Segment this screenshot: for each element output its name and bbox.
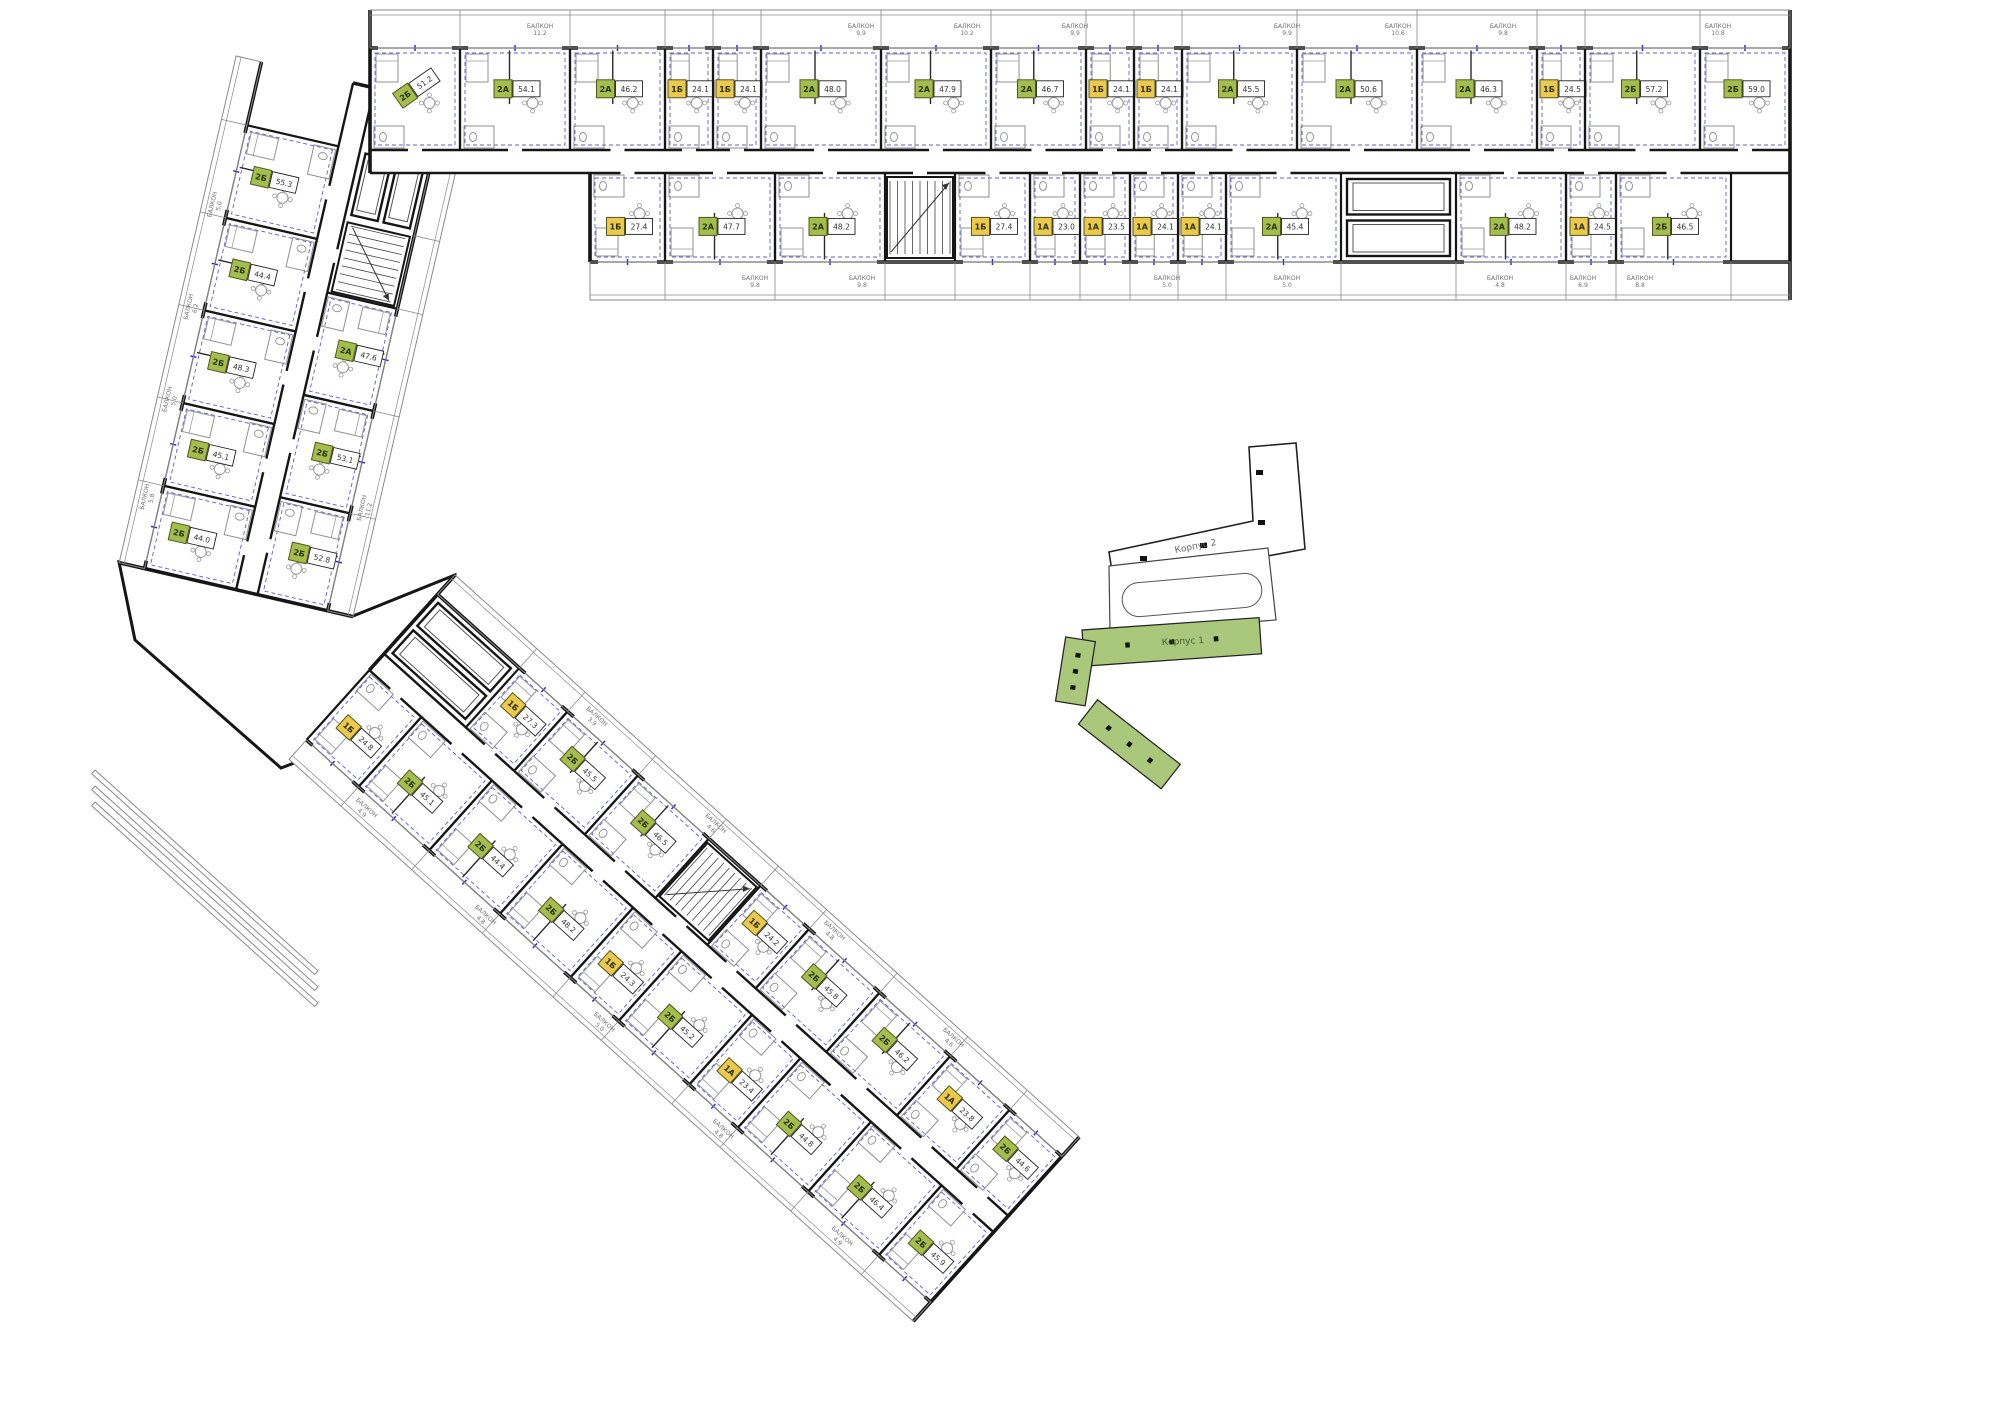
- unit-badge[interactable]: 2А47.9: [915, 80, 961, 98]
- svg-text:50.6: 50.6: [1360, 85, 1377, 94]
- svg-text:9.8: 9.8: [1498, 30, 1508, 37]
- svg-text:24.1: 24.1: [692, 85, 709, 94]
- svg-text:2А: 2А: [1493, 222, 1506, 231]
- unit-badge[interactable]: 2А47.7: [699, 217, 745, 235]
- svg-text:1А: 1А: [1573, 222, 1586, 231]
- svg-text:48.2: 48.2: [833, 222, 850, 231]
- svg-text:45.4: 45.4: [1287, 222, 1304, 231]
- svg-text:10.8: 10.8: [1711, 30, 1725, 37]
- svg-text:БАЛКОН: БАЛКОН: [742, 275, 768, 282]
- svg-text:9.9: 9.9: [1070, 30, 1080, 37]
- svg-text:24.5: 24.5: [1594, 222, 1611, 231]
- unit-badge[interactable]: 2А48.0: [800, 80, 846, 98]
- unit-badge[interactable]: 2А46.7: [1018, 80, 1064, 98]
- svg-text:БАЛКОН: БАЛКОН: [1570, 275, 1596, 282]
- svg-text:10.6: 10.6: [1391, 30, 1405, 37]
- svg-text:1Б: 1Б: [610, 222, 622, 231]
- svg-text:БАЛКОН: БАЛКОН: [1487, 275, 1513, 282]
- svg-text:1Б: 1Б: [719, 85, 731, 94]
- svg-text:2А: 2А: [1266, 222, 1279, 231]
- unit-badge[interactable]: 2Б59.0: [1724, 80, 1770, 98]
- svg-text:2А: 2А: [812, 222, 825, 231]
- minimap-korpus-1[interactable]: [1051, 618, 1271, 796]
- svg-text:11.2: 11.2: [533, 30, 547, 37]
- svg-text:48.2: 48.2: [1514, 222, 1531, 231]
- svg-text:БАЛКОН: БАЛКОН: [1274, 23, 1300, 30]
- unit-badge[interactable]: 2Б57.2: [1622, 80, 1668, 98]
- svg-text:1Б: 1Б: [1092, 85, 1104, 94]
- svg-text:БАЛКОН: БАЛКОН: [1154, 275, 1180, 282]
- svg-text:2Б: 2Б: [1625, 85, 1637, 94]
- svg-text:БАЛКОН: БАЛКОН: [849, 275, 875, 282]
- top-wing: 2Б51.22А54.12А46.21Б24.11Б24.12А48.02А47…: [370, 10, 1790, 300]
- svg-text:8.8: 8.8: [1635, 282, 1645, 289]
- svg-text:2А: 2А: [1339, 85, 1352, 94]
- unit-badge[interactable]: 2Б46.5: [1653, 217, 1699, 235]
- svg-text:27.4: 27.4: [996, 222, 1013, 231]
- svg-text:БАЛКОН: БАЛКОН: [1627, 275, 1653, 282]
- svg-text:6.9: 6.9: [1578, 282, 1588, 289]
- unit-badge[interactable]: 1Б24.1: [1089, 80, 1135, 98]
- svg-text:10.2: 10.2: [960, 30, 974, 37]
- unit-badge[interactable]: 2А46.3: [1456, 80, 1502, 98]
- unit-badge[interactable]: 1Б24.1: [668, 80, 714, 98]
- unit-badge[interactable]: 2А54.1: [494, 80, 540, 98]
- unit-badge[interactable]: 2А50.6: [1336, 80, 1382, 98]
- svg-text:45.5: 45.5: [1243, 85, 1260, 94]
- svg-text:23.5: 23.5: [1108, 222, 1125, 231]
- unit-badge[interactable]: 1Б24.1: [1137, 80, 1183, 98]
- svg-text:БАЛКОН: БАЛКОН: [1385, 23, 1411, 30]
- svg-text:2А: 2А: [1459, 85, 1472, 94]
- svg-text:4.8: 4.8: [1495, 282, 1505, 289]
- unit-badge[interactable]: 1А24.1: [1181, 217, 1227, 235]
- svg-text:24.1: 24.1: [740, 85, 757, 94]
- svg-text:59.0: 59.0: [1748, 85, 1765, 94]
- svg-text:1Б: 1Б: [671, 85, 683, 94]
- svg-text:1Б: 1Б: [1140, 85, 1152, 94]
- svg-text:БАЛКОН: БАЛКОН: [527, 23, 553, 30]
- svg-text:23.0: 23.0: [1058, 222, 1075, 231]
- svg-text:27.4: 27.4: [631, 222, 648, 231]
- svg-text:2А: 2А: [918, 85, 931, 94]
- svg-text:1А: 1А: [1136, 222, 1149, 231]
- svg-text:2А: 2А: [1222, 85, 1235, 94]
- svg-text:24.1: 24.1: [1205, 222, 1222, 231]
- svg-text:9.9: 9.9: [1282, 30, 1292, 37]
- svg-text:2А: 2А: [803, 85, 816, 94]
- svg-text:1Б: 1Б: [1543, 85, 1555, 94]
- svg-text:1А: 1А: [1087, 222, 1100, 231]
- svg-text:9.8: 9.8: [750, 282, 760, 289]
- svg-text:2А: 2А: [497, 85, 510, 94]
- svg-text:1А: 1А: [1184, 222, 1197, 231]
- svg-text:46.5: 46.5: [1677, 222, 1694, 231]
- svg-text:2А: 2А: [1021, 85, 1034, 94]
- unit-badge[interactable]: 1Б24.1: [716, 80, 762, 98]
- svg-text:24.1: 24.1: [1113, 85, 1130, 94]
- svg-text:2А: 2А: [600, 85, 613, 94]
- svg-text:24.5: 24.5: [1564, 85, 1581, 94]
- svg-text:БАЛКОН: БАЛКОН: [1274, 275, 1300, 282]
- unit-badge[interactable]: 1А23.0: [1034, 217, 1080, 235]
- unit-badge[interactable]: 1А23.5: [1084, 217, 1130, 235]
- site-minimap: Корпус 2Корпус 1: [1051, 443, 1305, 796]
- svg-text:БАЛКОН: БАЛКОН: [1705, 23, 1731, 30]
- svg-text:2Б: 2Б: [1656, 222, 1668, 231]
- svg-text:БАЛКОН: БАЛКОН: [954, 23, 980, 30]
- svg-text:5.0: 5.0: [1282, 282, 1292, 289]
- svg-text:1Б: 1Б: [975, 222, 987, 231]
- unit-badge[interactable]: 2А48.2: [1490, 217, 1536, 235]
- svg-text:24.1: 24.1: [1157, 222, 1174, 231]
- svg-text:БАЛКОН: БАЛКОН: [848, 23, 874, 30]
- svg-text:54.1: 54.1: [518, 85, 535, 94]
- svg-text:5.0: 5.0: [1162, 282, 1172, 289]
- svg-text:47.7: 47.7: [723, 222, 740, 231]
- svg-text:2А: 2А: [702, 222, 715, 231]
- unit-badge[interactable]: 1Б24.5: [1540, 80, 1586, 98]
- svg-text:БАЛКОН: БАЛКОН: [1490, 23, 1516, 30]
- svg-text:1А: 1А: [1037, 222, 1050, 231]
- svg-text:47.9: 47.9: [939, 85, 956, 94]
- unit-badge[interactable]: 2А46.2: [597, 80, 643, 98]
- unit-badge[interactable]: 1А24.1: [1133, 217, 1179, 235]
- svg-text:2Б: 2Б: [1727, 85, 1739, 94]
- svg-text:46.3: 46.3: [1480, 85, 1497, 94]
- svg-text:БАЛКОН: БАЛКОН: [1062, 23, 1088, 30]
- svg-text:48.0: 48.0: [824, 85, 841, 94]
- bottom-wing: 1Б27.32Б45.52Б46.51Б24.22Б45.82Б46.21А23…: [289, 575, 1079, 1321]
- unit-badge[interactable]: 1А24.5: [1570, 217, 1616, 235]
- svg-text:24.1: 24.1: [1161, 85, 1178, 94]
- unit-badge[interactable]: 2А45.4: [1263, 217, 1309, 235]
- unit-badge[interactable]: 1Б27.4: [607, 217, 653, 235]
- unit-badge[interactable]: 1Б27.4: [972, 217, 1018, 235]
- floor-plan-page: 2А47.62Б53.12Б52.82Б55.32Б44.42Б48.32Б45…: [0, 0, 2000, 1415]
- svg-text:46.2: 46.2: [621, 85, 638, 94]
- svg-text:57.2: 57.2: [1646, 85, 1663, 94]
- svg-text:46.7: 46.7: [1042, 85, 1059, 94]
- unit-badge[interactable]: 2А48.2: [809, 217, 855, 235]
- floor-plan-canvas: 2А47.62Б53.12Б52.82Б55.32Б44.42Б48.32Б45…: [0, 0, 2000, 1415]
- unit-badge[interactable]: 2А45.5: [1219, 80, 1265, 98]
- svg-text:9.9: 9.9: [856, 30, 866, 37]
- svg-text:9.8: 9.8: [857, 282, 867, 289]
